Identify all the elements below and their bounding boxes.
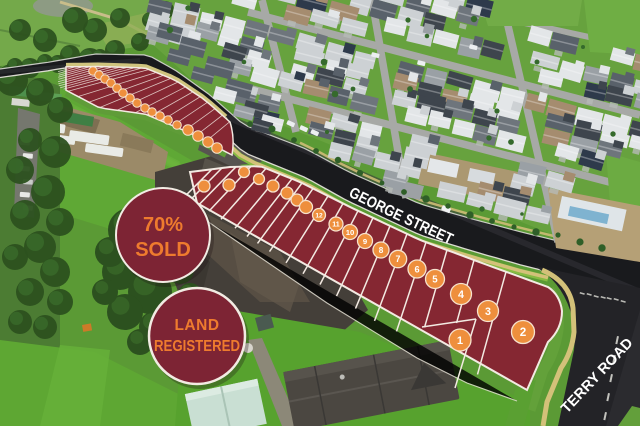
svg-text:70%: 70% <box>143 214 183 236</box>
svg-text:9: 9 <box>363 237 367 246</box>
svg-text:10: 10 <box>346 228 355 237</box>
svg-text:2: 2 <box>520 326 527 339</box>
svg-text:1: 1 <box>457 335 463 347</box>
svg-text:11: 11 <box>332 221 340 229</box>
svg-text:3: 3 <box>485 306 491 318</box>
svg-text:8: 8 <box>379 246 384 255</box>
svg-text:6: 6 <box>414 264 419 274</box>
svg-text:12: 12 <box>315 212 323 219</box>
svg-text:SOLD: SOLD <box>135 239 191 261</box>
svg-text:REGISTERED: REGISTERED <box>154 338 240 355</box>
svg-text:LAND: LAND <box>174 317 219 334</box>
svg-text:7: 7 <box>396 254 401 264</box>
svg-text:5: 5 <box>432 275 438 286</box>
svg-text:4: 4 <box>458 289 464 301</box>
